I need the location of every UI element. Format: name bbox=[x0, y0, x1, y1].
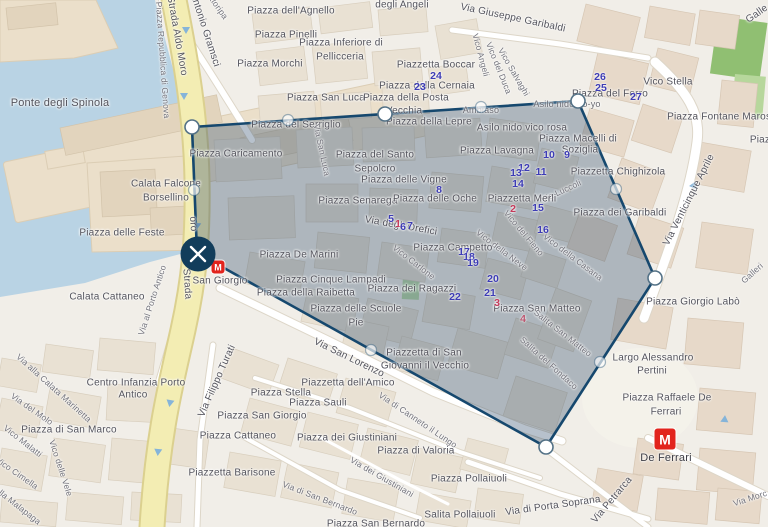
polygon-midpoint[interactable] bbox=[611, 184, 622, 195]
polygon-vertex[interactable] bbox=[185, 120, 199, 134]
delete-point-button[interactable] bbox=[181, 237, 216, 272]
polygon-midpoints bbox=[189, 102, 622, 368]
polygon-vertex[interactable] bbox=[648, 271, 662, 285]
handles-layer bbox=[0, 0, 768, 527]
polygon-vertex[interactable] bbox=[378, 107, 392, 121]
polygon-midpoint[interactable] bbox=[595, 357, 606, 368]
map-canvas[interactable]: Ponte degli Spinola Strada Aldo Moro Pia… bbox=[0, 0, 768, 527]
polygon-vertices bbox=[185, 94, 662, 454]
polygon-vertex[interactable] bbox=[539, 440, 553, 454]
polygon-midpoint[interactable] bbox=[283, 115, 294, 126]
polygon-vertex[interactable] bbox=[571, 94, 585, 108]
polygon-midpoint[interactable] bbox=[366, 345, 377, 356]
polygon-midpoint[interactable] bbox=[189, 185, 200, 196]
polygon-midpoint[interactable] bbox=[476, 102, 487, 113]
